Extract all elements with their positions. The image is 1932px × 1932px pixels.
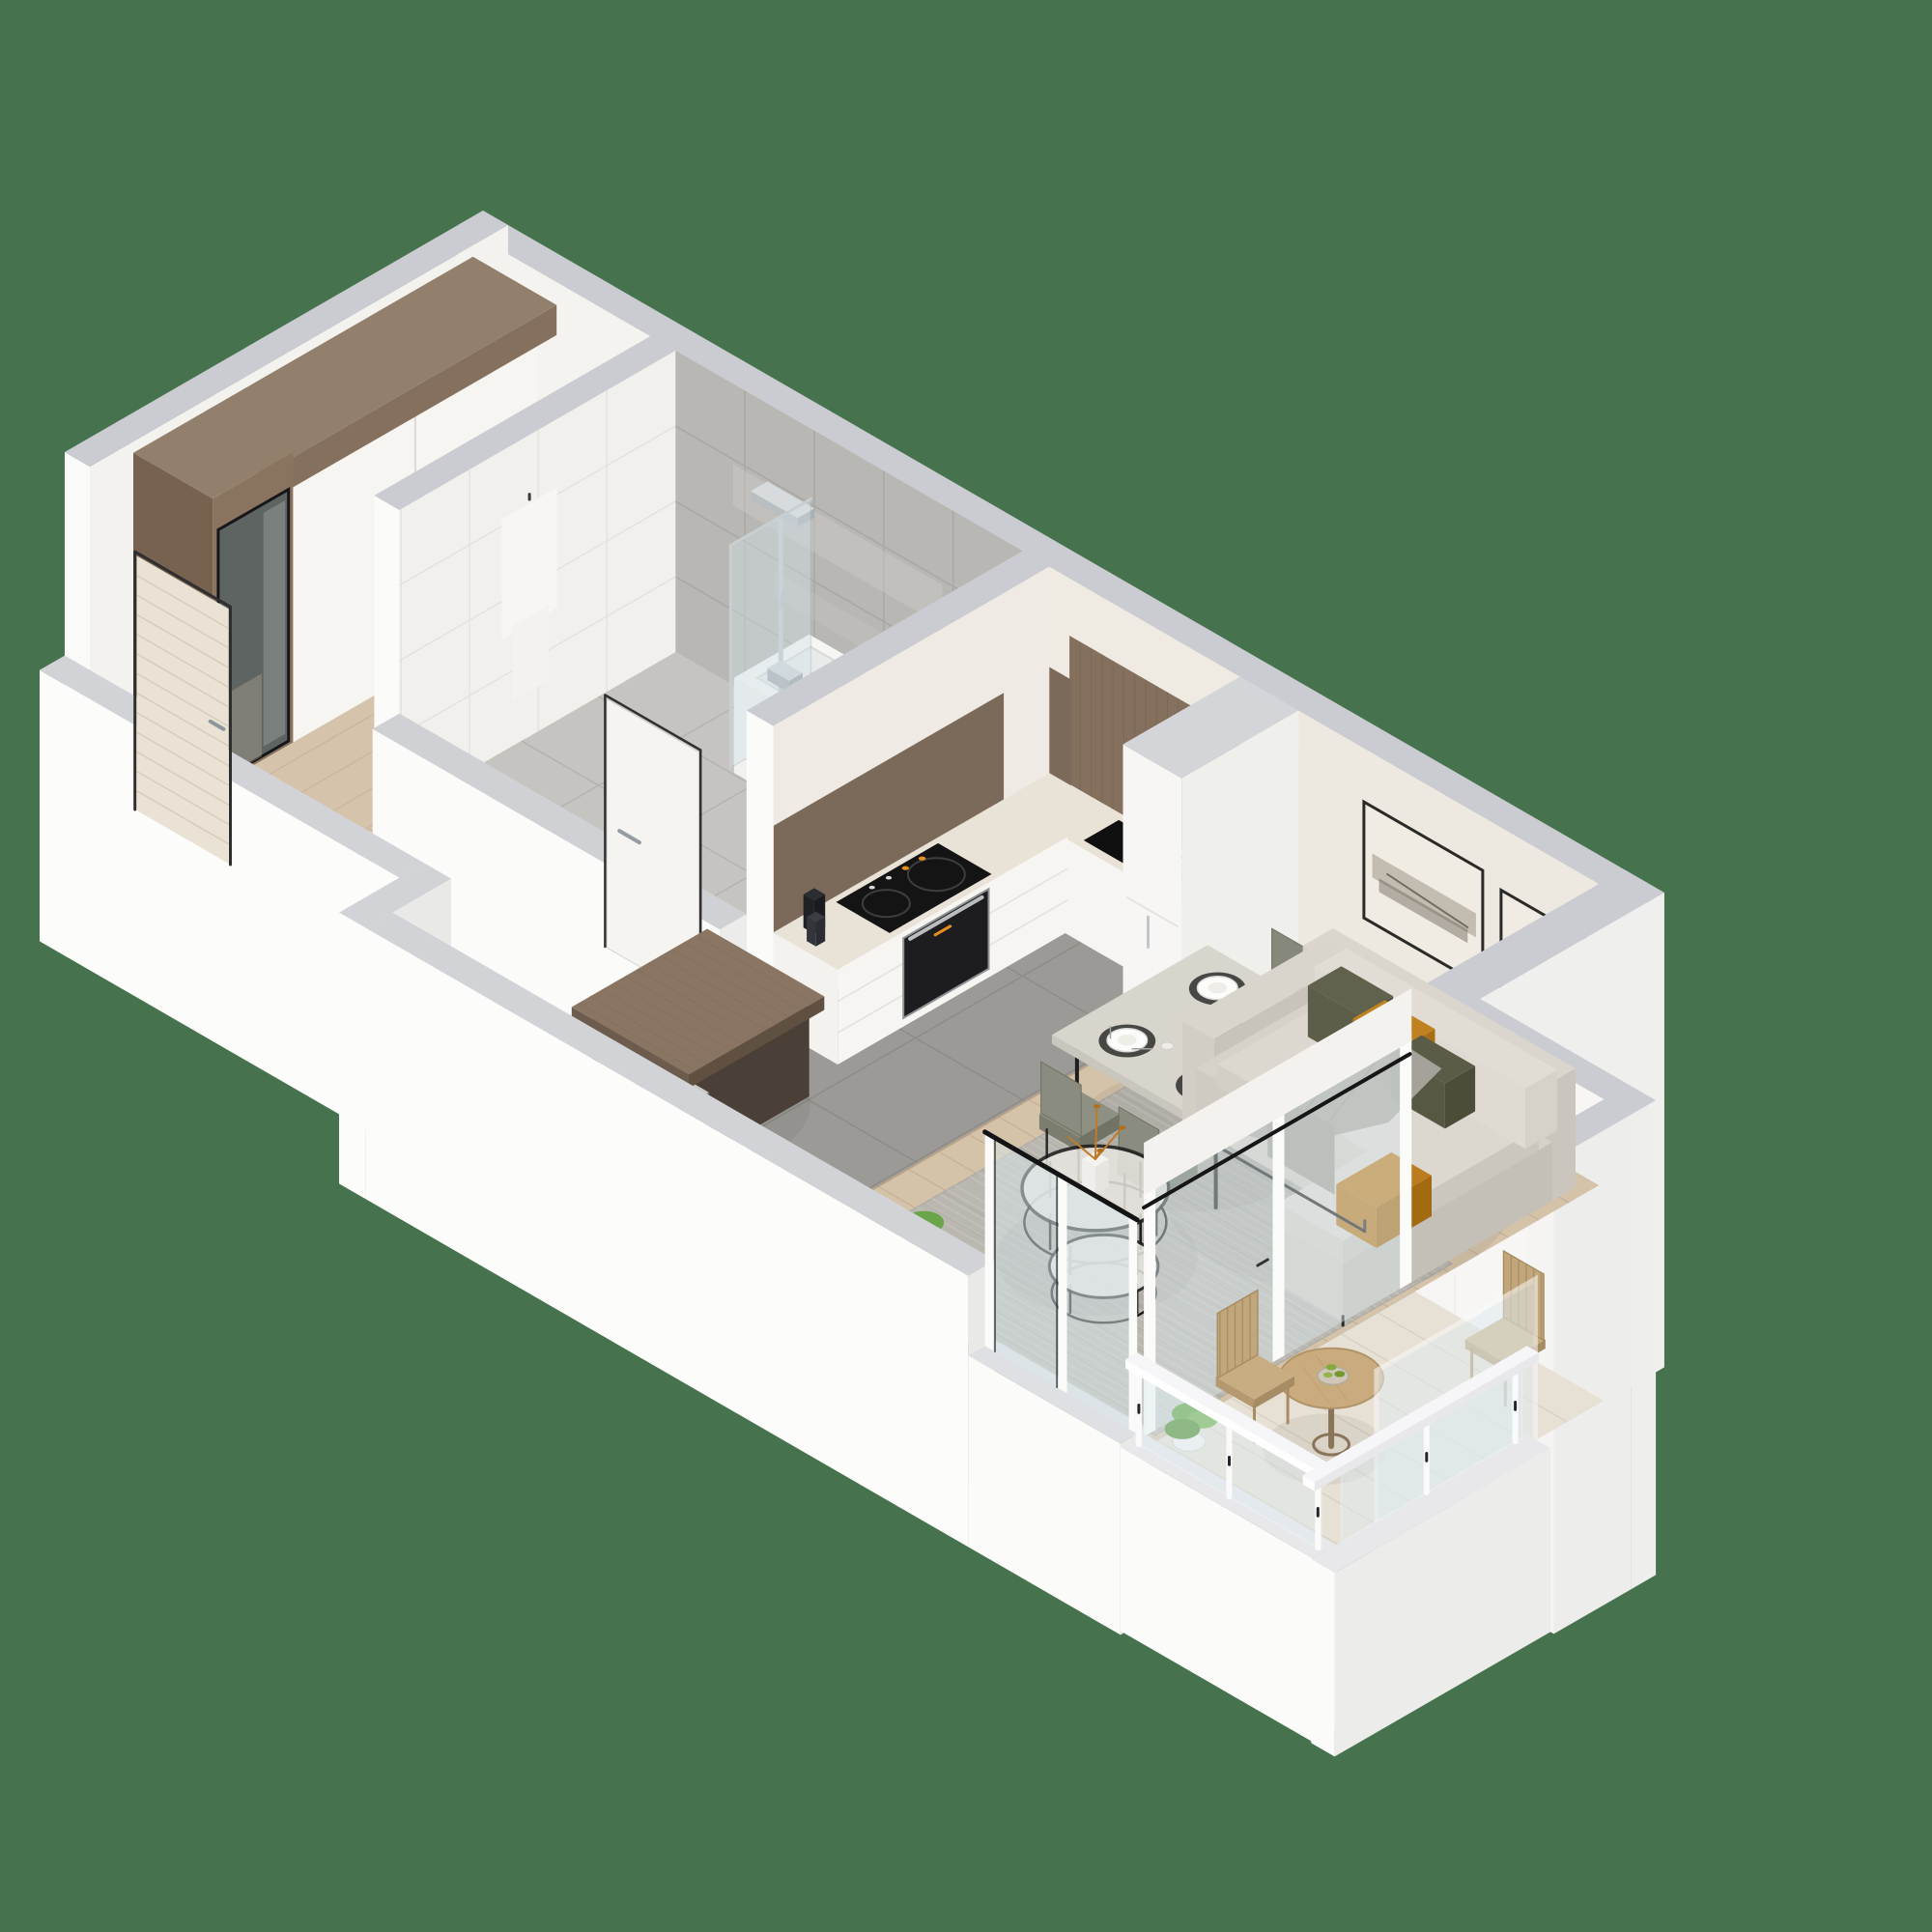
window-post [985, 1130, 994, 1350]
hob-display-orange [919, 857, 925, 861]
railing-curb-right [1311, 1559, 1334, 1756]
balcony-back-wall [1631, 1100, 1656, 1589]
balcony-door-frame [1400, 1034, 1411, 1289]
plate-center [1208, 982, 1228, 993]
fruit [1334, 1371, 1345, 1377]
fruit [1323, 1373, 1333, 1378]
floorplan-stage [0, 0, 1932, 1932]
fruit [1326, 1364, 1337, 1370]
twig-tip [1119, 1125, 1125, 1129]
hob-control-dot [886, 876, 892, 880]
hob-control-dot [869, 886, 875, 890]
twig-tip [1096, 1149, 1103, 1152]
plate-center [1118, 1035, 1137, 1045]
hob-display-orange [902, 867, 909, 870]
facade-step-wall [339, 913, 366, 1200]
balcony-door-frame [1273, 1107, 1285, 1362]
mirror-highlight [264, 500, 286, 747]
window-post [1059, 1173, 1067, 1393]
isometric-floorplan [0, 0, 1932, 1932]
twig-tip [1094, 1104, 1100, 1108]
glass [1161, 1042, 1174, 1050]
kitchen-backsplash-back [1048, 667, 1070, 789]
